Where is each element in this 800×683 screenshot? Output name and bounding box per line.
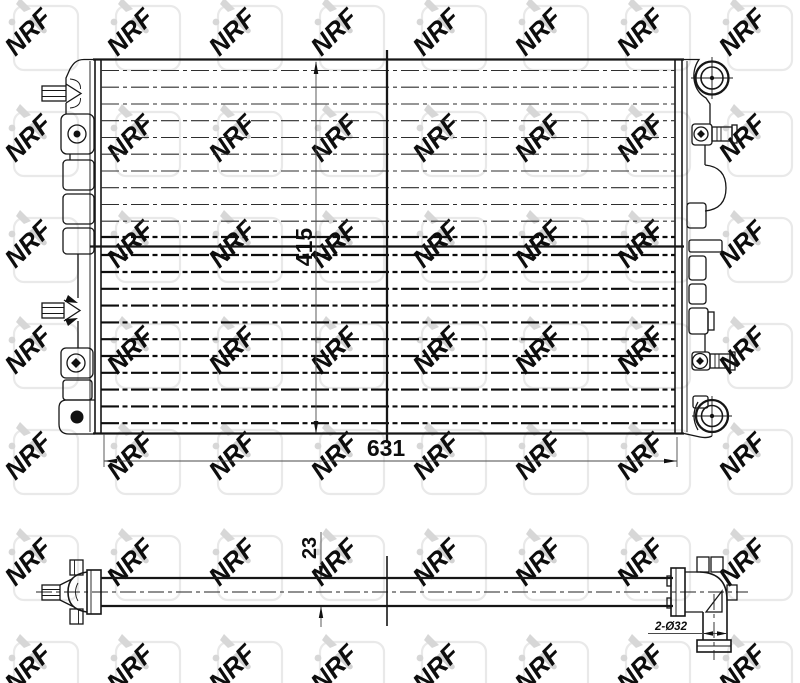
height-dimension-label: 415 [291, 228, 317, 267]
ports-dimension-label: 2-Ø32 [654, 621, 688, 633]
radiator-technical-drawing: NRF [0, 0, 800, 683]
watermark-background [0, 0, 800, 683]
width-dimension-label: 631 [367, 435, 406, 461]
depth-dimension-label: 23 [299, 537, 321, 559]
drawing-page: NRF [0, 0, 800, 683]
